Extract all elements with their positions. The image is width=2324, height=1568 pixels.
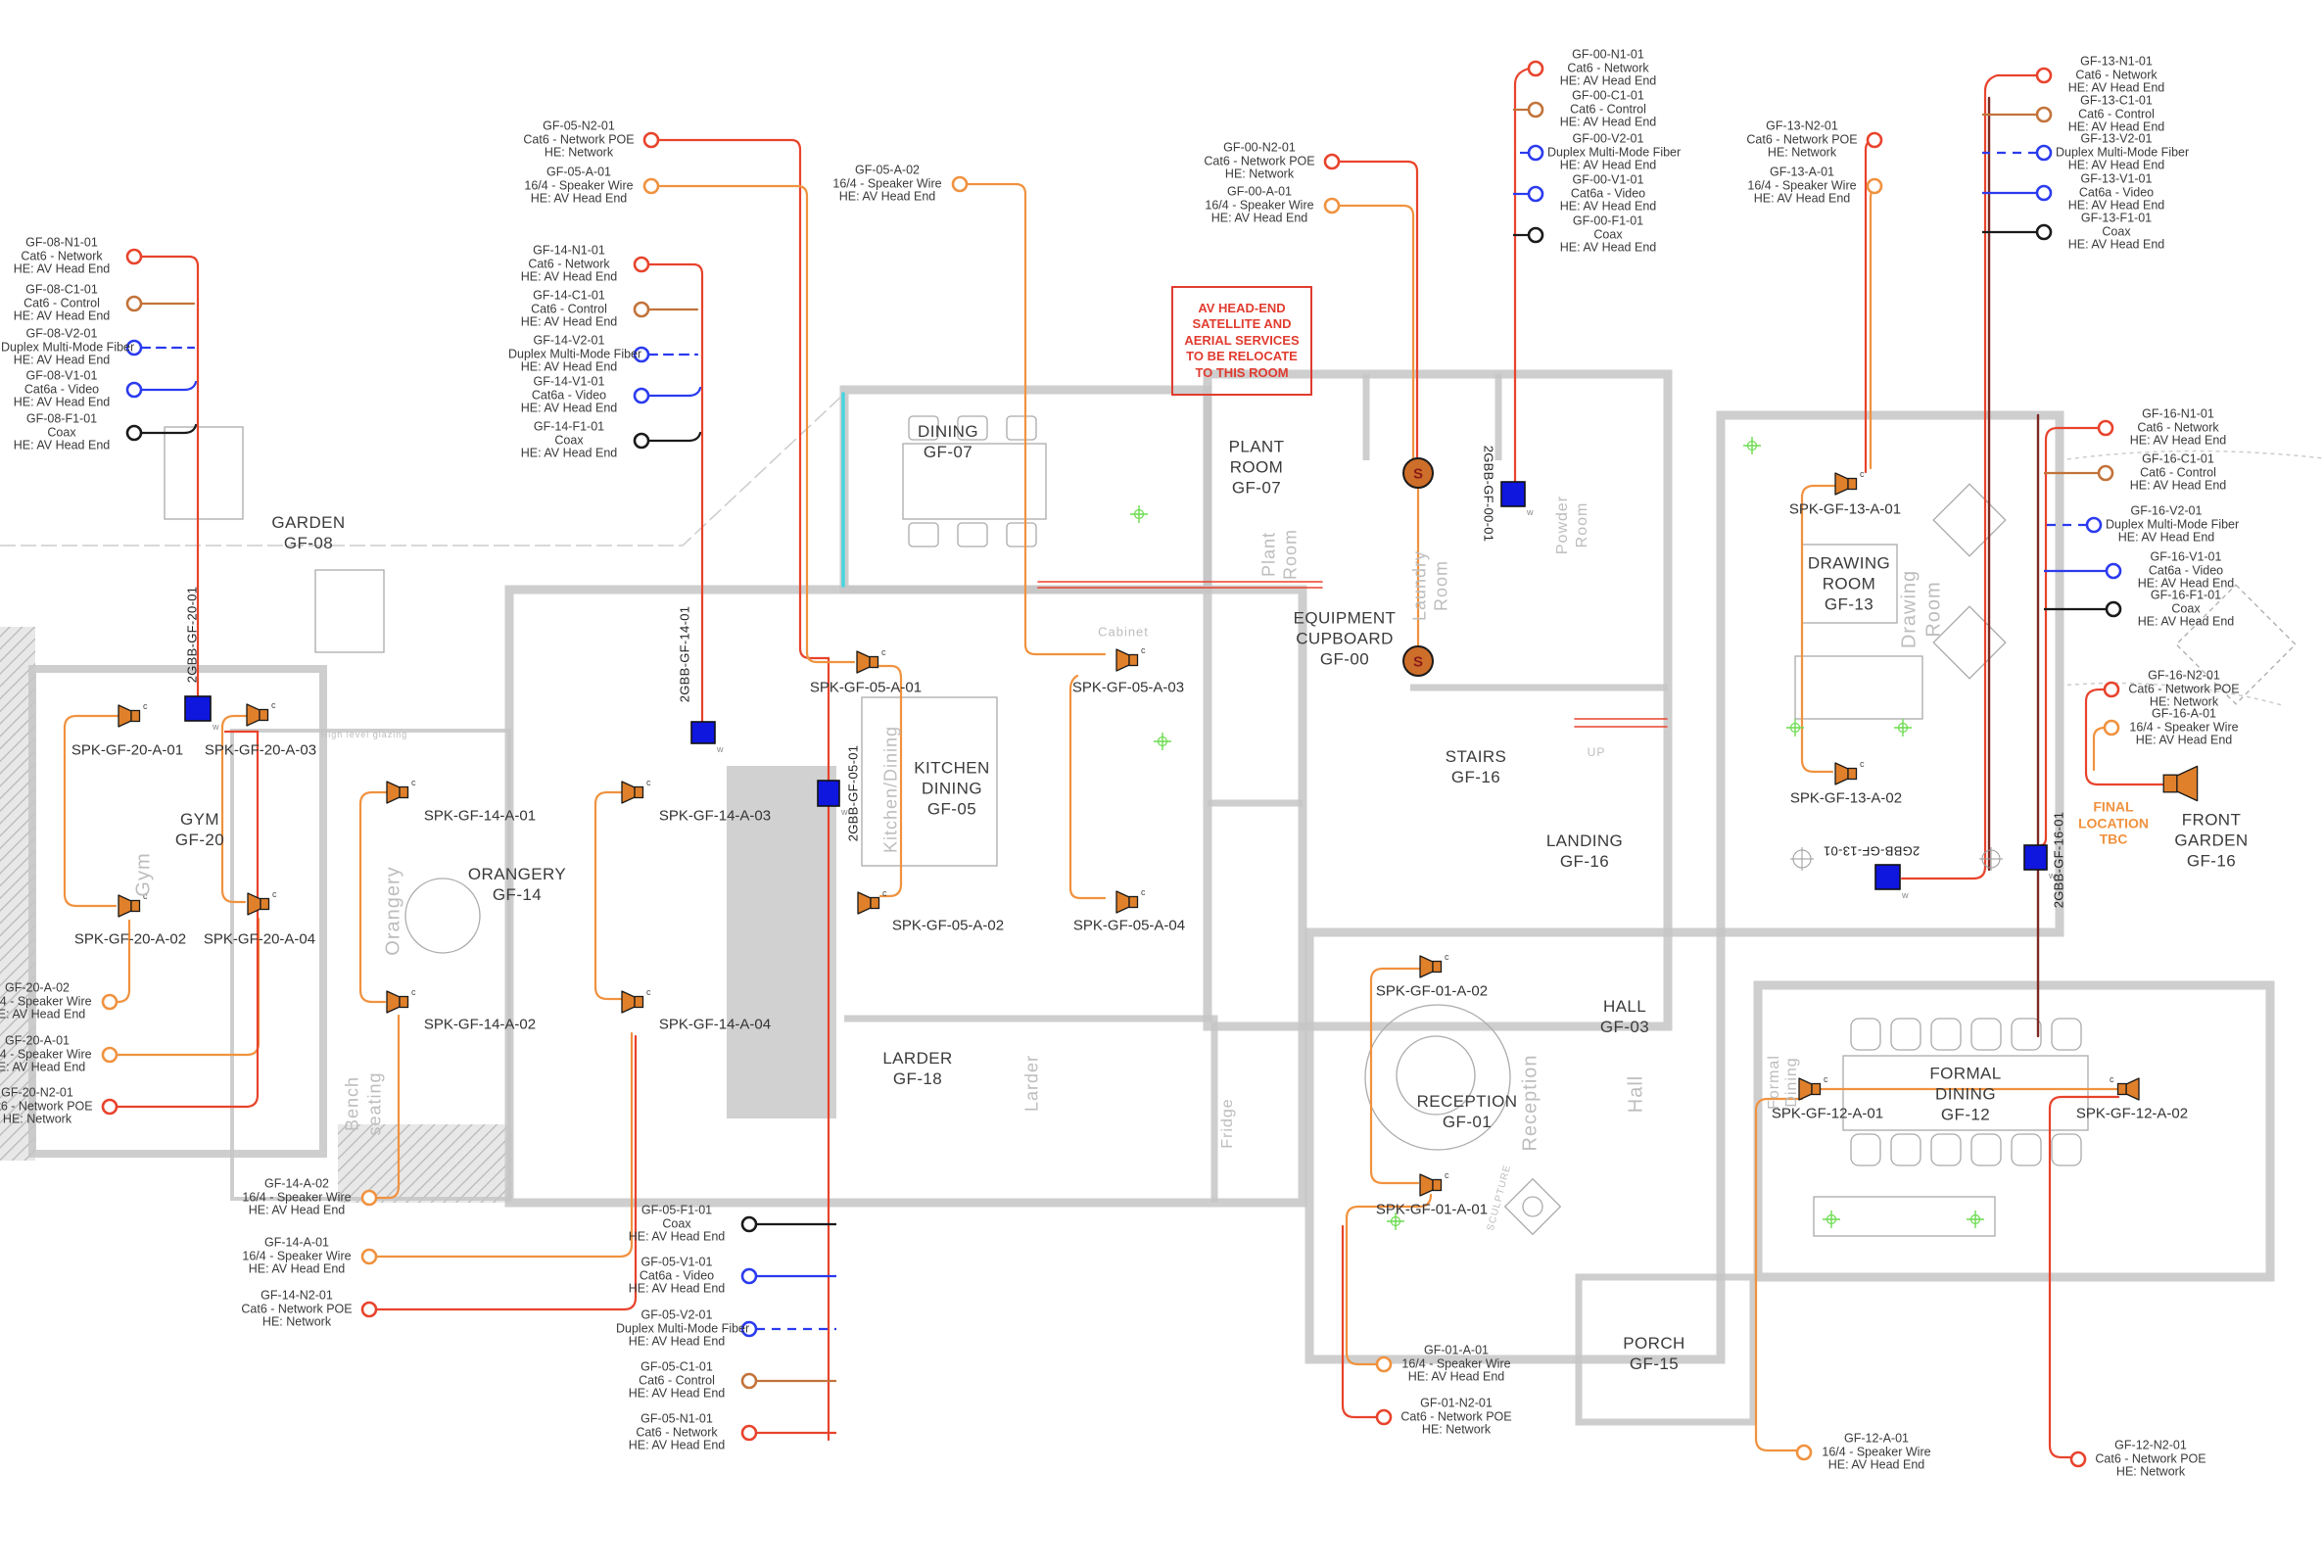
cable-label-GF-16-V2-01: GF-16-V2-01Duplex Multi-Mode FiberHE: AV…	[2106, 505, 2227, 546]
cable-label-GF-14-V2-01: GF-14-V2-01Duplex Multi-Mode FiberHE: AV…	[508, 335, 630, 375]
cable-label-GF-00-N2-01: GF-00-N2-01Cat6 - Network POEHE: Network	[1199, 142, 1320, 182]
room-label-gf-14: ORANGERYGF-14	[468, 864, 566, 905]
bg-label-drawing: Drawing	[1899, 570, 1921, 648]
room-label-gf-07: PLANTROOMGF-07	[1229, 437, 1285, 499]
cable-label-GF-01-A-01: GF-01-A-0116/4 - Speaker WireHE: AV Head…	[1396, 1345, 1517, 1385]
final-location-note: FINALLOCATIONTBC	[2078, 798, 2149, 847]
room-label-gf-07: DININGGF-07	[918, 421, 978, 462]
bg-label-sculpture: SCULPTURE	[1486, 1164, 1514, 1232]
cable-label-GF-13-F1-01: GF-13-F1-01CoaxHE: AV Head End	[2056, 213, 2177, 253]
room-label-gf-16: LANDINGGF-16	[1546, 831, 1623, 872]
speaker-label-SPK-GF-14-A-01: SPK-GF-14-A-01	[424, 808, 536, 825]
cable-label-GF-14-A-01: GF-14-A-0116/4 - Speaker WireHE: AV Head…	[236, 1237, 357, 1277]
cable-label-GF-08-C1-01: GF-08-C1-01Cat6 - ControlHE: AV Head End	[1, 284, 122, 324]
cable-label-GF-12-A-01: GF-12-A-0116/4 - Speaker WireHE: AV Head…	[1816, 1433, 1937, 1473]
bg-label-room: Room	[1574, 502, 1591, 548]
floorplan-canvas: ccccccccccccccccccwwwwwwSS GARDENGF-08DI…	[0, 0, 2324, 1568]
keypad-label-2GBB-GF-14-01: 2GBB-GF-14-01	[678, 606, 692, 703]
cable-label-GF-13-V2-01: GF-13-V2-01Duplex Multi-Mode FiberHE: AV…	[2056, 133, 2177, 173]
speaker-label-SPK-GF-14-A-02: SPK-GF-14-A-02	[424, 1017, 536, 1033]
speaker-label-SPK-GF-05-A-03: SPK-GF-05-A-03	[1072, 680, 1184, 696]
room-label-gf-13: DRAWINGROOMGF-13	[1808, 553, 1890, 615]
cable-label-GF-16-V1-01: GF-16-V1-01Cat6a - VideoHE: AV Head End	[2125, 551, 2247, 592]
keypad-label-2GBB-GF-16-01: 2GBB-GF-16-01	[2052, 812, 2066, 909]
keypad-label-2GBB-GF-13-01: 2GBB-GF-13-01	[1824, 844, 1921, 859]
bg-label-up: UP	[1588, 745, 1606, 759]
bg-label-cabinet: Cabinet	[1098, 625, 1149, 640]
cable-label-GF-13-N2-01: GF-13-N2-01Cat6 - Network POEHE: Network	[1741, 120, 1863, 161]
speaker-label-SPK-GF-20-A-03: SPK-GF-20-A-03	[205, 742, 316, 759]
bg-label-kitchen-dining: Kitchen/Dining	[881, 726, 902, 853]
cable-label-GF-20-A-01: GF-20-A-0116/4 - Speaker WireHE: AV Head…	[0, 1035, 98, 1075]
bg-label-dining: Dining	[1783, 1057, 1801, 1107]
bg-label-larder: Larder	[1022, 1055, 1043, 1112]
keypad-label-2GBB-GF-20-01: 2GBB-GF-20-01	[185, 587, 200, 684]
bg-label-gym: Gym	[133, 852, 156, 896]
label-layer: GARDENGF-08DININGGF-07PLANTROOMGF-07EQUI…	[0, 0, 2324, 1568]
cable-label-GF-13-V1-01: GF-13-V1-01Cat6a - VideoHE: AV Head End	[2056, 173, 2177, 214]
speaker-label-SPK-GF-14-A-03: SPK-GF-14-A-03	[659, 808, 771, 825]
bg-label-room: Room	[1281, 529, 1302, 580]
bg-label-reception: Reception	[1520, 1054, 1542, 1151]
cable-label-GF-14-N2-01: GF-14-N2-01Cat6 - Network POEHE: Network	[236, 1290, 357, 1330]
room-label-gf-05: KITCHENDININGGF-05	[914, 758, 989, 820]
bg-label-high-level-glazing: High level glazing	[321, 730, 408, 739]
bg-label-plant: Plant	[1259, 532, 1280, 577]
cable-label-GF-12-N2-01: GF-12-N2-01Cat6 - Network POEHE: Network	[2090, 1440, 2211, 1480]
cable-label-GF-13-A-01: GF-13-A-0116/4 - Speaker WireHE: AV Head…	[1741, 166, 1863, 207]
speaker-label-SPK-GF-01-A-01: SPK-GF-01-A-01	[1376, 1202, 1488, 1218]
bg-label-room: Room	[1432, 560, 1452, 611]
cable-label-GF-14-F1-01: GF-14-F1-01CoaxHE: AV Head End	[508, 421, 630, 461]
room-label-gf-18: LARDERGF-18	[882, 1048, 952, 1089]
cable-label-GF-00-F1-01: GF-00-F1-01CoaxHE: AV Head End	[1547, 215, 1669, 256]
bg-label-bench: Bench	[343, 1076, 363, 1131]
bg-label-orangery: Orangery	[383, 866, 405, 955]
cable-label-GF-16-C1-01: GF-16-C1-01Cat6 - ControlHE: AV Head End	[2117, 453, 2239, 494]
bg-label-hall: Hall	[1626, 1075, 1648, 1113]
cable-label-GF-08-V2-01: GF-08-V2-01Duplex Multi-Mode FiberHE: AV…	[1, 328, 122, 368]
bg-label-fridge: Fridge	[1219, 1098, 1237, 1148]
bg-label-room: Room	[1923, 581, 1946, 637]
speaker-label-SPK-GF-13-A-01: SPK-GF-13-A-01	[1789, 501, 1901, 518]
cable-label-GF-16-A-01: GF-16-A-0116/4 - Speaker WireHE: AV Head…	[2123, 708, 2245, 748]
cable-label-GF-20-A-02: GF-20-A-0216/4 - Speaker WireHE: AV Head…	[0, 982, 98, 1022]
bg-label-seating: seating	[365, 1071, 386, 1135]
speaker-label-SPK-GF-20-A-01: SPK-GF-20-A-01	[71, 742, 183, 759]
cable-label-GF-14-V1-01: GF-14-V1-01Cat6a - VideoHE: AV Head End	[508, 376, 630, 416]
cable-label-GF-00-V1-01: GF-00-V1-01Cat6a - VideoHE: AV Head End	[1547, 174, 1669, 214]
cable-label-GF-05-F1-01: GF-05-F1-01CoaxHE: AV Head End	[616, 1205, 737, 1245]
room-label-gf-20: GYMGF-20	[175, 809, 224, 850]
speaker-label-SPK-GF-20-A-04: SPK-GF-20-A-04	[204, 931, 315, 948]
cable-label-GF-00-V2-01: GF-00-V2-01Duplex Multi-Mode FiberHE: AV…	[1547, 133, 1669, 173]
cable-label-GF-08-V1-01: GF-08-V1-01Cat6a - VideoHE: AV Head End	[1, 370, 122, 410]
av-headend-note: AV HEAD-ENDSATELLITE ANDAERIAL SERVICEST…	[1171, 286, 1312, 396]
speaker-label-SPK-GF-12-A-01: SPK-GF-12-A-01	[1772, 1106, 1883, 1122]
speaker-label-SPK-GF-05-A-02: SPK-GF-05-A-02	[892, 918, 1004, 934]
cable-label-GF-16-F1-01: GF-16-F1-01CoaxHE: AV Head End	[2125, 590, 2247, 630]
cable-label-GF-16-N2-01: GF-16-N2-01Cat6 - Network POEHE: Network	[2123, 670, 2245, 710]
cable-label-GF-20-N2-01: GF-20-N2-01Cat6 - Network POEHE: Network	[0, 1087, 98, 1127]
room-label-gf-08: GARDENGF-08	[271, 512, 345, 553]
cable-label-GF-05-A-02: GF-05-A-0216/4 - Speaker WireHE: AV Head…	[827, 165, 948, 205]
cable-label-GF-05-N1-01: GF-05-N1-01Cat6 - NetworkHE: AV Head End	[616, 1413, 737, 1453]
bg-label-powder: Powder	[1554, 496, 1572, 554]
cable-label-GF-01-N2-01: GF-01-N2-01Cat6 - Network POEHE: Network	[1396, 1398, 1517, 1438]
bg-label-laundry: Laundry	[1410, 550, 1431, 621]
room-label-gf-16: FRONTGARDENGF-16	[2174, 810, 2248, 872]
cable-label-GF-08-N1-01: GF-08-N1-01Cat6 - NetworkHE: AV Head End	[1, 237, 122, 277]
cable-label-GF-14-N1-01: GF-14-N1-01Cat6 - NetworkHE: AV Head End	[508, 245, 630, 285]
cable-label-GF-00-A-01: GF-00-A-0116/4 - Speaker WireHE: AV Head…	[1199, 186, 1320, 226]
cable-label-GF-05-V1-01: GF-05-V1-01Cat6a - VideoHE: AV Head End	[616, 1257, 737, 1297]
speaker-label-SPK-GF-20-A-02: SPK-GF-20-A-02	[74, 931, 186, 948]
room-label-gf-16: STAIRSGF-16	[1446, 746, 1507, 787]
cable-label-GF-05-N2-01: GF-05-N2-01Cat6 - Network POEHE: Network	[518, 120, 640, 161]
cable-label-GF-05-A-01: GF-05-A-0116/4 - Speaker WireHE: AV Head…	[518, 166, 640, 207]
cable-label-GF-08-F1-01: GF-08-F1-01CoaxHE: AV Head End	[1, 413, 122, 453]
bg-label-formal: Formal	[1766, 1055, 1783, 1110]
speaker-label-SPK-GF-05-A-01: SPK-GF-05-A-01	[810, 680, 922, 696]
cable-label-GF-00-C1-01: GF-00-C1-01Cat6 - ControlHE: AV Head End	[1547, 90, 1669, 130]
keypad-label-2GBB-GF-00-01: 2GBB-GF-00-01	[1482, 446, 1496, 543]
cable-label-GF-00-N1-01: GF-00-N1-01Cat6 - NetworkHE: AV Head End	[1547, 49, 1669, 89]
keypad-label-2GBB-GF-05-01: 2GBB-GF-05-01	[846, 745, 861, 842]
room-label-gf-12: FORMALDININGGF-12	[1929, 1064, 2001, 1125]
speaker-label-SPK-GF-13-A-02: SPK-GF-13-A-02	[1790, 790, 1902, 807]
cable-label-GF-05-C1-01: GF-05-C1-01Cat6 - ControlHE: AV Head End	[616, 1361, 737, 1402]
room-label-gf-00: EQUIPMENTCUPBOARDGF-00	[1294, 608, 1397, 670]
speaker-label-SPK-GF-05-A-04: SPK-GF-05-A-04	[1073, 918, 1185, 934]
speaker-label-SPK-GF-01-A-02: SPK-GF-01-A-02	[1376, 983, 1488, 1000]
cable-label-GF-16-N1-01: GF-16-N1-01Cat6 - NetworkHE: AV Head End	[2117, 408, 2239, 449]
room-label-gf-03: HALLGF-03	[1600, 996, 1649, 1037]
speaker-label-SPK-GF-12-A-02: SPK-GF-12-A-02	[2076, 1106, 2188, 1122]
speaker-label-SPK-GF-14-A-04: SPK-GF-14-A-04	[659, 1017, 771, 1033]
cable-label-GF-14-C1-01: GF-14-C1-01Cat6 - ControlHE: AV Head End	[508, 290, 630, 330]
cable-label-GF-05-V2-01: GF-05-V2-01Duplex Multi-Mode FiberHE: AV…	[616, 1309, 737, 1350]
room-label-gf-01: RECEPTIONGF-01	[1417, 1091, 1518, 1132]
cable-label-GF-14-A-02: GF-14-A-0216/4 - Speaker WireHE: AV Head…	[236, 1178, 357, 1218]
cable-label-GF-13-N1-01: GF-13-N1-01Cat6 - NetworkHE: AV Head End	[2056, 56, 2177, 96]
cable-label-GF-13-C1-01: GF-13-C1-01Cat6 - ControlHE: AV Head End	[2056, 95, 2177, 135]
room-label-gf-15: PORCHGF-15	[1623, 1333, 1684, 1374]
